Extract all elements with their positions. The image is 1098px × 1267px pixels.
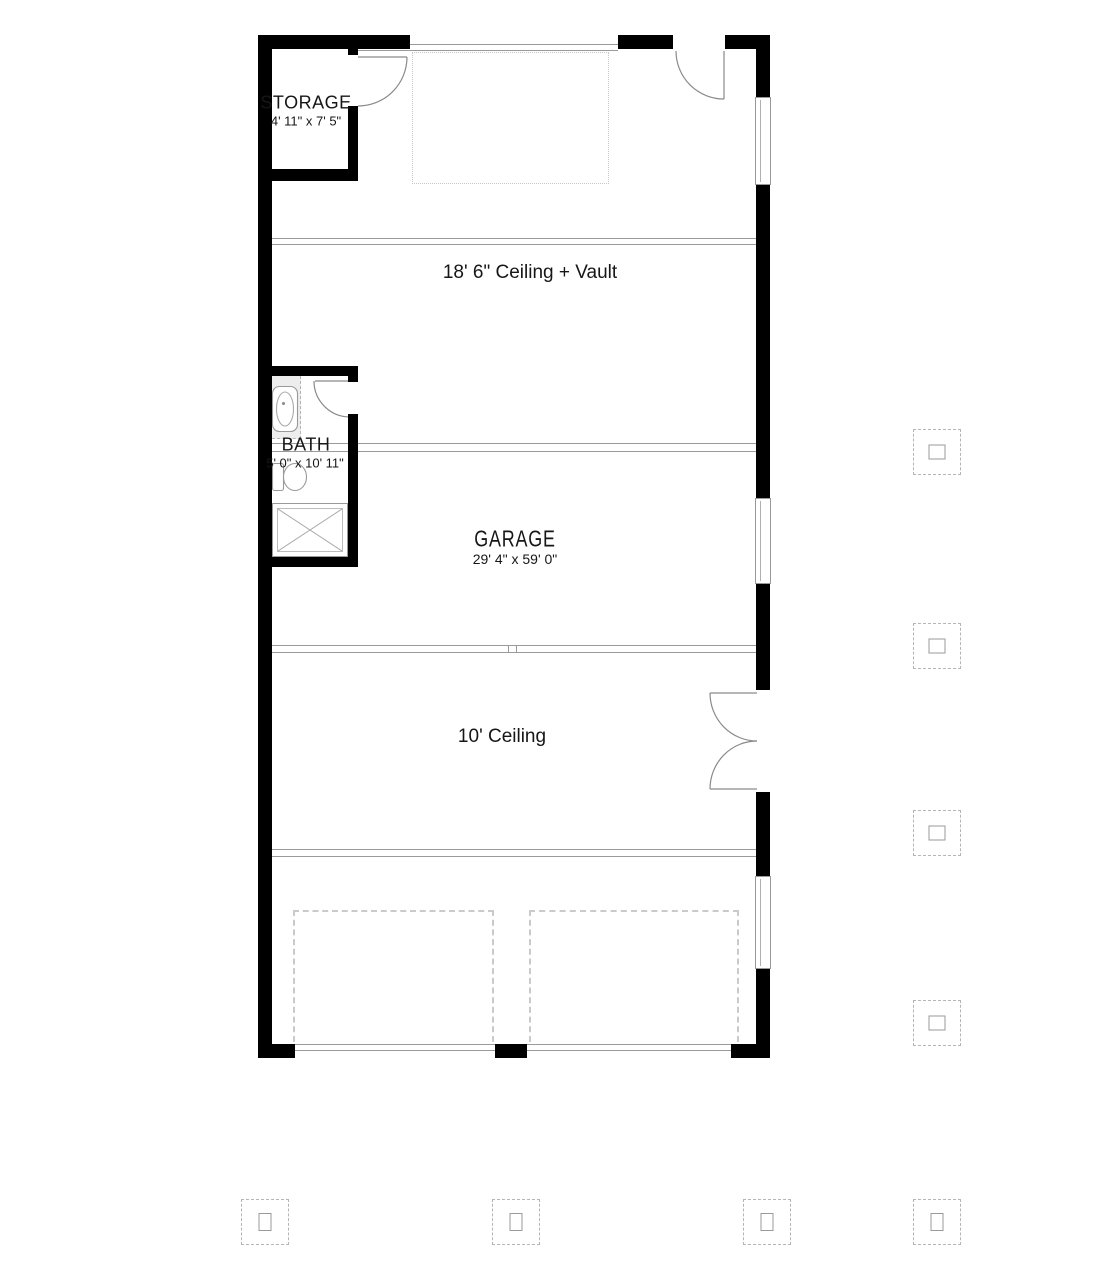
wall-east-seg2 bbox=[756, 183, 770, 499]
bath-south-wall bbox=[258, 557, 358, 567]
window-east-upper bbox=[755, 97, 771, 185]
floor-plan: STORAGE 4' 11" x 7' 5" 18' 6" Ceiling + … bbox=[0, 0, 1098, 1267]
upper-ceiling-note: 18' 6" Ceiling + Vault bbox=[443, 262, 617, 284]
wall-east-seg3 bbox=[756, 583, 770, 690]
bath-north-wall bbox=[258, 366, 358, 376]
window-east-middle bbox=[755, 498, 771, 584]
storage-south-wall bbox=[258, 169, 358, 181]
storage-room-dims: 4' 11" x 7' 5" bbox=[271, 114, 341, 129]
bathtub-drain-icon bbox=[282, 402, 285, 405]
garage-room-dims: 29' 4" x 59' 0" bbox=[473, 551, 558, 567]
bathtub-basin-icon bbox=[277, 392, 294, 426]
double-door-bottom-leaf-icon bbox=[710, 741, 757, 789]
plan-symbols-layer bbox=[0, 0, 1098, 1267]
storage-room-label: STORAGE bbox=[260, 93, 351, 114]
storage-door-swing-icon bbox=[358, 57, 407, 106]
window-east-lower bbox=[755, 876, 771, 969]
wall-north-left bbox=[258, 35, 410, 49]
entry-door-swing-icon bbox=[676, 51, 724, 99]
wall-south-right-pier bbox=[731, 1044, 770, 1058]
window-glazing-line bbox=[760, 501, 761, 581]
storage-east-wall-stub bbox=[348, 35, 358, 55]
window-glazing-line bbox=[760, 100, 761, 182]
bath-east-wall bbox=[348, 414, 358, 567]
shower-x-icon bbox=[278, 509, 342, 551]
bath-door-swing-icon bbox=[314, 381, 350, 417]
wall-west bbox=[258, 35, 272, 1058]
bath-east-wall-stub bbox=[348, 366, 358, 382]
wall-east-seg1 bbox=[756, 35, 770, 98]
window-glazing-line bbox=[760, 879, 761, 966]
wall-south-left-pier bbox=[258, 1044, 295, 1058]
wall-east-seg4 bbox=[756, 792, 770, 877]
bath-room-dims: 5' 0" x 10' 11" bbox=[266, 456, 344, 471]
wall-south-center-pier bbox=[495, 1044, 527, 1058]
wall-north-mid bbox=[618, 35, 673, 49]
double-door-top-leaf-icon bbox=[710, 693, 757, 741]
garage-room-label: GARAGE bbox=[474, 526, 555, 553]
bath-room-label: BATH bbox=[282, 435, 331, 456]
lower-ceiling-note: 10' Ceiling bbox=[458, 726, 546, 748]
